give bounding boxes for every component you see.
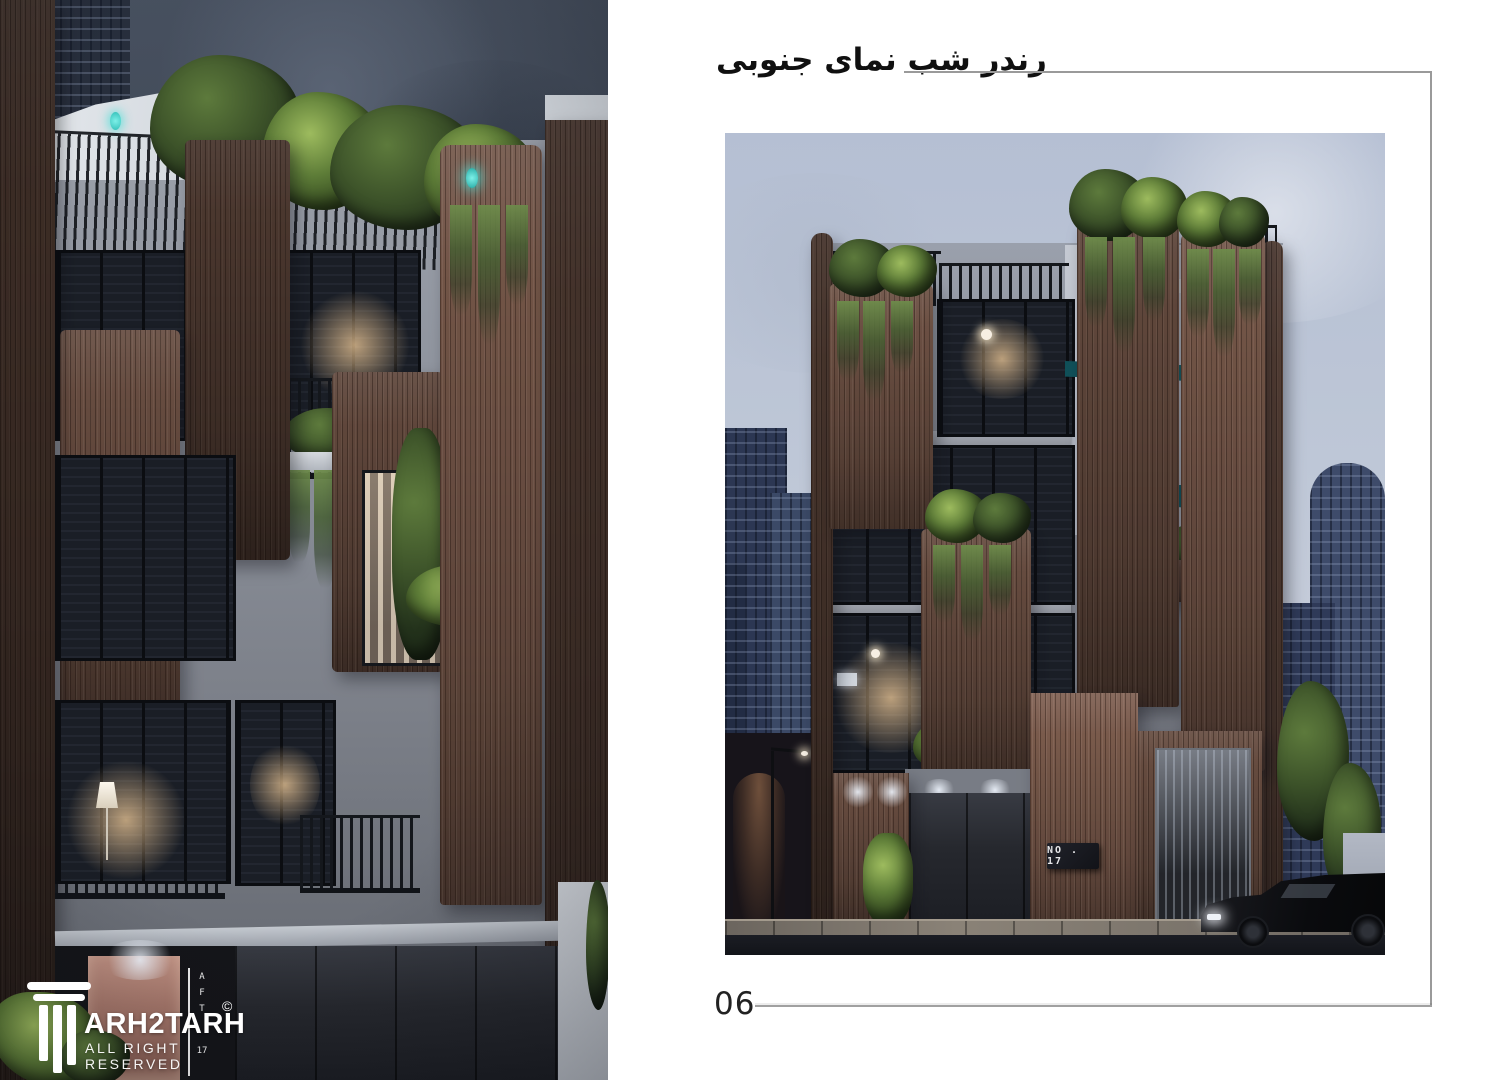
vignette <box>0 0 608 1080</box>
car-wheel <box>1351 914 1385 948</box>
car-headlight <box>1207 914 1221 920</box>
south-facade-render: NO . 17 <box>725 133 1385 955</box>
streetlamp-pole <box>771 751 774 928</box>
page-number: 06 <box>714 986 755 1022</box>
entrance-plant <box>863 833 913 925</box>
pendant-light <box>871 649 880 658</box>
hanging-vine <box>1239 249 1261 325</box>
brand-tagline: ALL RIGHT RESERVED <box>85 1040 266 1072</box>
car-wheel <box>1237 916 1269 948</box>
warm-window-glow <box>957 319 1047 399</box>
wall-downlight <box>877 775 907 809</box>
address-plaque-text: NO . 17 <box>1047 845 1099 867</box>
hanging-vine <box>1085 237 1107 327</box>
entrance-pier <box>1030 693 1138 925</box>
tv-glow <box>837 673 857 686</box>
arched-doorway <box>733 773 785 928</box>
hanging-vine <box>891 301 913 373</box>
title-rule <box>904 71 1431 73</box>
left-render-photo: A F T 17 ARH2TARH © ALL RIGHT RESERVED <box>0 0 608 1080</box>
portfolio-page: A F T 17 ARH2TARH © ALL RIGHT RESERVED <box>0 0 1500 1080</box>
hanging-vine <box>863 301 885 401</box>
brand-logo: ARH2TARH © ALL RIGHT RESERVED <box>26 976 266 1076</box>
address-plaque: NO . 17 <box>1047 843 1099 869</box>
column-icon <box>26 976 92 1076</box>
hanging-vine <box>1113 237 1135 353</box>
wall-downlight <box>843 775 873 809</box>
frame-right-rule <box>1430 71 1432 1007</box>
pendant-light <box>981 329 992 340</box>
hanging-vine <box>933 545 955 623</box>
parked-car <box>1201 870 1385 945</box>
hanging-vine <box>1187 249 1209 337</box>
hanging-vine <box>989 545 1011 615</box>
footer-rule <box>755 1005 1432 1007</box>
streetlamp-light <box>801 751 808 756</box>
hanging-vine <box>961 545 983 641</box>
copyright-symbol: © <box>222 998 232 1014</box>
hanging-vine <box>837 301 859 381</box>
hanging-vine <box>1213 249 1235 357</box>
car-windshield <box>1281 884 1336 898</box>
hanging-vine <box>1143 237 1165 321</box>
